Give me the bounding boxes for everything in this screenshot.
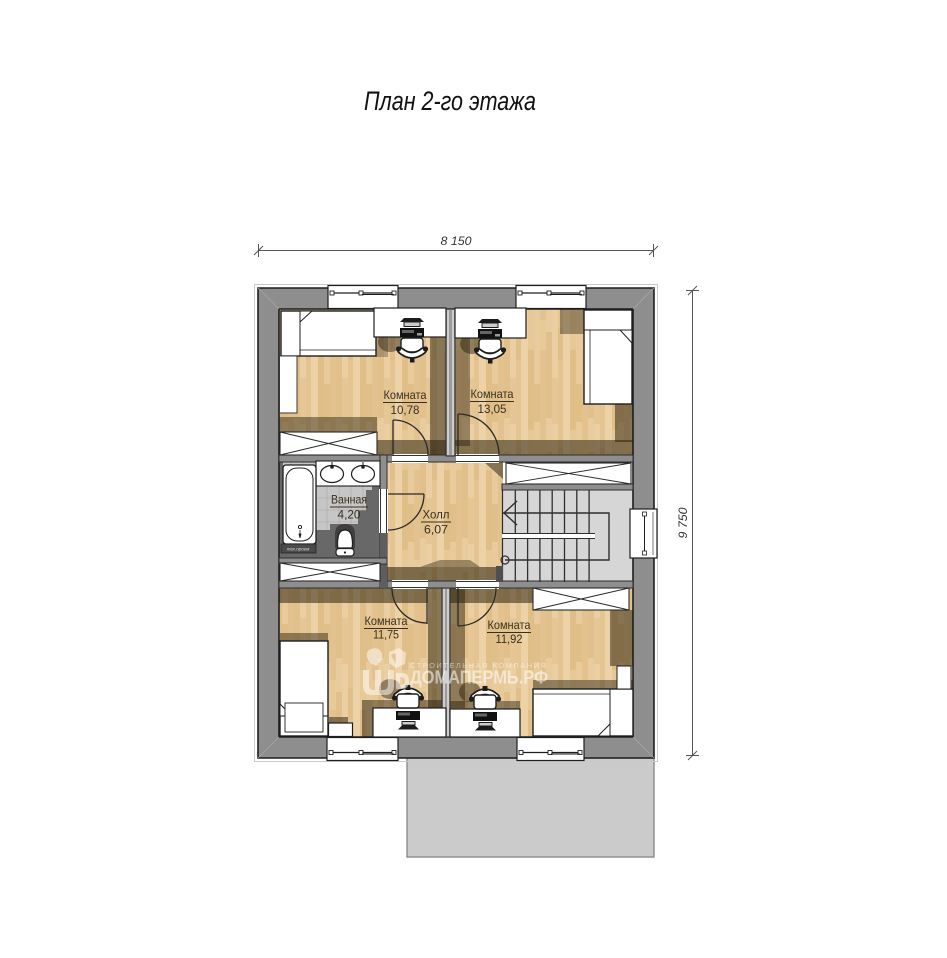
svg-text:11,92: 11,92	[496, 632, 523, 646]
svg-text:9 750: 9 750	[676, 507, 690, 538]
svg-text:Комната: Комната	[471, 387, 514, 401]
svg-text:6,07: 6,07	[424, 523, 448, 537]
svg-text:10,78: 10,78	[391, 403, 420, 417]
svg-text:Комната: Комната	[384, 388, 427, 402]
svg-text:Комната: Комната	[488, 618, 531, 632]
svg-text:11,75: 11,75	[373, 628, 399, 642]
svg-text:План 2-го этажа: План 2-го этажа	[364, 86, 536, 116]
svg-text:Холл: Холл	[423, 508, 450, 522]
svg-text:Ванная: Ванная	[331, 493, 367, 507]
svg-text:8 150: 8 150	[441, 234, 472, 248]
svg-text:ДОМАПЕРМЬ.РФ: ДОМАПЕРМЬ.РФ	[410, 667, 548, 688]
svg-text:13,05: 13,05	[478, 402, 507, 416]
svg-text:4,20: 4,20	[338, 508, 361, 522]
svg-text:Комната: Комната	[365, 614, 408, 628]
svg-text:тех.проем: тех.проем	[287, 547, 310, 552]
